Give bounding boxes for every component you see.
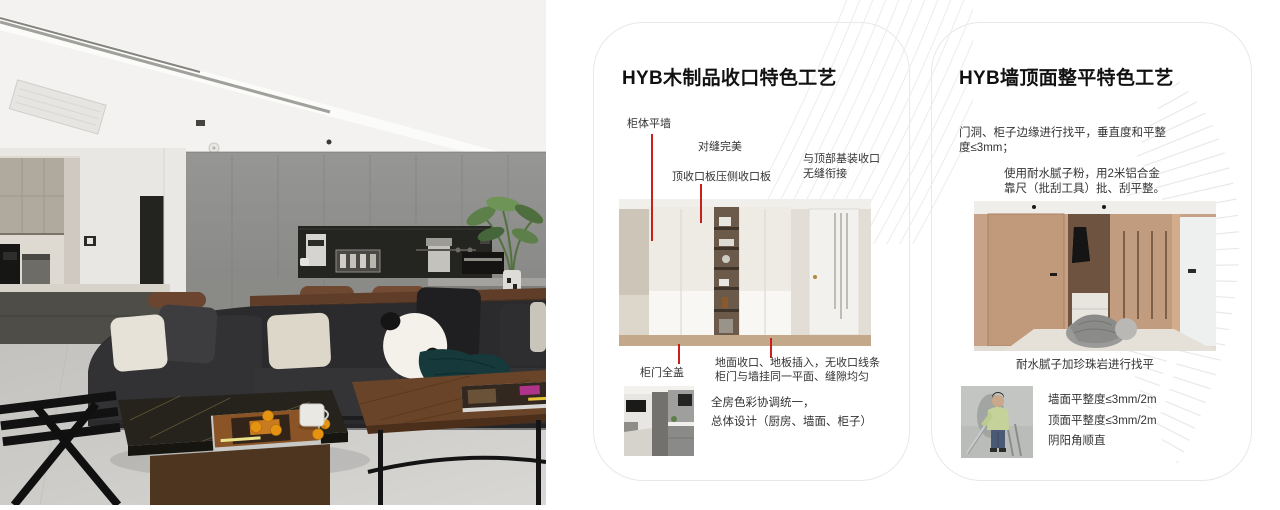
appliance-niche xyxy=(298,226,504,278)
open-shelves xyxy=(714,207,739,337)
annotation-line xyxy=(700,184,702,223)
downlight xyxy=(327,140,332,145)
sideboard-top xyxy=(428,278,546,286)
annotation-line xyxy=(770,338,772,358)
design-summary: 全房色彩协调统一， 总体设计（厨房、墙面、柜子） xyxy=(711,394,872,432)
annotation-top-connection: 与顶部基装收口 无缝衔接 xyxy=(803,152,880,182)
kitchen-island-top xyxy=(0,284,170,292)
card1-content: HYB木制品收口特色工艺 柜体平墙 对缝完美 顶收口板压侧收口板 与顶部基装收口… xyxy=(594,23,909,480)
grey-column xyxy=(652,392,668,456)
black-coffee-machine xyxy=(0,244,20,286)
mug xyxy=(300,258,309,266)
flatness-note-wall: 墙面平整度≤3mm/2m xyxy=(1048,393,1157,408)
card2-title: HYB墙顶面整平特色工艺 xyxy=(959,63,1174,90)
annotation-full-cover-door: 柜门全盖 xyxy=(640,366,684,381)
card2-main-image xyxy=(974,201,1216,351)
annotation-top-board: 顶收口板压侧收口板 xyxy=(672,170,771,185)
magazine xyxy=(461,382,546,413)
card1-small-image xyxy=(624,386,694,456)
living-room-photo xyxy=(0,0,546,505)
card-wall-ceiling-leveling-process: HYB墙顶面整平特色工艺 门洞、柜子边缘进行找平，垂直度和平整 度≤3mm； 使… xyxy=(931,22,1252,481)
living-room-scene xyxy=(0,0,546,505)
card2-small-image xyxy=(961,386,1033,458)
corner-note: 阴阳角顺直 xyxy=(1048,434,1106,449)
grey-pillow xyxy=(530,302,546,352)
interior-door xyxy=(809,209,859,335)
annotation-line xyxy=(678,344,680,364)
oven xyxy=(678,394,692,406)
wood-door xyxy=(988,214,1064,346)
leveling-paragraph-2: 使用耐水腻子粉，用2米铝合金 靠尺（批刮工具）批、刮平整。 xyxy=(1004,167,1165,197)
ceiling-sensor xyxy=(196,120,205,126)
flatness-note-ceiling: 顶面平整度≤3mm/2m xyxy=(1048,414,1157,429)
card1-title: HYB木制品收口特色工艺 xyxy=(622,63,837,90)
floor-finish-note: 地面收口、地板插入，无收口线条 柜门与墙挂同一平面、缝隙均匀 xyxy=(715,356,880,384)
wood-floor xyxy=(619,335,871,346)
leveling-paragraph-1: 门洞、柜子边缘进行找平，垂直度和平整 度≤3mm； xyxy=(959,126,1166,156)
cream-pillow xyxy=(267,312,332,369)
ceiling xyxy=(0,0,546,168)
annotation-line xyxy=(651,134,653,241)
annotation-perfect-seam: 对缝完美 xyxy=(698,140,742,155)
card1-main-image xyxy=(619,199,871,346)
perlite-caption: 耐水腻子加珍珠岩进行找平 xyxy=(1016,358,1154,373)
white-mug xyxy=(298,404,328,430)
white-pillow xyxy=(110,314,169,373)
tv xyxy=(626,400,646,412)
card-wood-finishing-process: HYB木制品收口特色工艺 柜体平墙 对缝完美 顶收口板压侧收口板 与顶部基装收口… xyxy=(593,22,910,481)
radio xyxy=(462,252,504,274)
card2-content: HYB墙顶面整平特色工艺 门洞、柜子边缘进行找平，垂直度和平整 度≤3mm； 使… xyxy=(932,23,1251,480)
annotation-cabinet-flush-wall: 柜体平墙 xyxy=(627,117,671,132)
glass-door xyxy=(1172,214,1216,346)
